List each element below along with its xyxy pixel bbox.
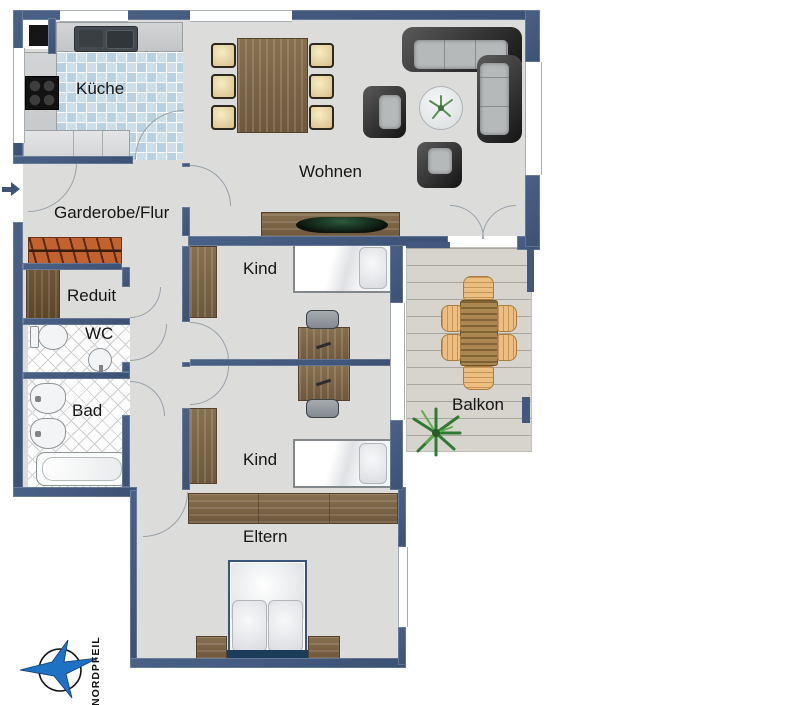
room-label-balkon: Balkon xyxy=(452,395,504,415)
wall-balcony-a xyxy=(390,236,403,303)
armchair-seat xyxy=(428,148,452,174)
wall-living-right-a xyxy=(525,10,540,62)
balcony-chair xyxy=(441,334,461,361)
wardrobe-divider xyxy=(258,494,259,523)
wall-eltern-right-b xyxy=(398,627,406,665)
office-chair xyxy=(306,310,339,329)
tap-icon xyxy=(35,396,41,402)
room-label-wc: WC xyxy=(85,324,113,344)
wardrobe xyxy=(189,246,217,318)
balcony-chair xyxy=(497,334,517,361)
room-label-wohnen: Wohnen xyxy=(299,162,362,182)
window-balcony-door xyxy=(390,303,405,420)
tap-icon xyxy=(35,431,41,437)
tv-sideboard xyxy=(261,212,400,238)
wall-reduit-right xyxy=(122,267,130,287)
wardrobe-divider xyxy=(329,494,330,523)
bathtub-basin xyxy=(42,457,122,481)
armchair xyxy=(417,142,462,188)
wall-bottom xyxy=(130,658,406,668)
double-bed xyxy=(228,560,307,662)
wall-balcony-b xyxy=(390,420,403,490)
tap-icon xyxy=(99,365,103,372)
stove xyxy=(25,76,59,110)
pillow xyxy=(232,600,267,652)
dining-chair xyxy=(309,105,334,130)
wall-corridor-a xyxy=(182,246,190,322)
reduit-cabinet xyxy=(26,268,60,320)
tv xyxy=(296,217,388,233)
room-label-reduit: Reduit xyxy=(67,286,116,306)
balcony-railing xyxy=(527,248,534,292)
armchair xyxy=(363,86,406,138)
wall-eltern-right-a xyxy=(398,487,406,547)
window xyxy=(190,10,292,22)
entry-arrow-head xyxy=(11,182,20,196)
pillow xyxy=(268,600,303,652)
room-label-garderobe: Garderobe/Flur xyxy=(54,203,169,223)
wall-kitchen-bottom xyxy=(13,156,133,164)
wall-corridor-c xyxy=(182,408,190,490)
entry-arrow-shaft xyxy=(2,187,11,192)
window xyxy=(60,10,128,22)
window xyxy=(525,62,542,175)
toilet-bowl xyxy=(38,323,68,350)
corner-sofa-right xyxy=(477,55,522,143)
dining-chair xyxy=(211,105,236,130)
wardrobe-rail xyxy=(28,237,122,264)
room-label-bad: Bad xyxy=(72,401,102,421)
nightstand xyxy=(196,636,227,660)
washbasin xyxy=(30,418,66,449)
balcony-railing xyxy=(406,242,450,248)
balcony-railing xyxy=(522,397,530,423)
balcony-chair xyxy=(463,366,494,390)
room-label-kind-unten: Kind xyxy=(243,450,277,470)
floor-plan: Küche Wohnen Garderobe/Flur Reduit WC Ba… xyxy=(0,0,800,705)
kitchen-shaft xyxy=(29,25,48,46)
room-label-kind-oben: Kind xyxy=(243,259,277,279)
balcony-chair xyxy=(497,305,517,332)
balcony-chair xyxy=(441,305,461,332)
armchair-seat xyxy=(379,95,401,129)
wall-reduit-wc xyxy=(23,318,130,325)
sofa-cushions xyxy=(480,63,509,135)
wall-hall-a xyxy=(182,163,190,167)
sink-basin xyxy=(106,30,134,49)
bathtub xyxy=(36,452,128,486)
north-arrow-label: NORDPFEIL xyxy=(90,634,102,705)
wall-kind-divider xyxy=(190,359,403,366)
sink-drainer xyxy=(79,30,103,47)
wall-niche-stub xyxy=(48,18,56,54)
pillow xyxy=(359,443,387,484)
wall-closet-bottom xyxy=(23,263,122,270)
wall-wc-right xyxy=(122,362,130,372)
bed-kind1 xyxy=(293,243,392,293)
wall-bad-right xyxy=(122,415,130,487)
wardrobe xyxy=(189,408,217,484)
balcony-chair xyxy=(463,276,494,300)
table-plant xyxy=(426,93,456,123)
dining-chair xyxy=(309,43,334,68)
wall-eltern-left xyxy=(130,490,137,668)
dining-table xyxy=(237,38,308,133)
wc-washbasin xyxy=(88,348,112,372)
window xyxy=(13,48,25,143)
wall-corridor-b xyxy=(182,362,190,367)
entry-arrow-icon xyxy=(2,180,22,198)
wall-bad-bottom xyxy=(13,487,137,497)
wall-wc-bad xyxy=(23,372,130,379)
pillow xyxy=(359,247,387,289)
window xyxy=(398,547,408,627)
dining-chair xyxy=(211,74,236,99)
room-label-eltern: Eltern xyxy=(243,527,287,547)
room-label-kueche: Küche xyxy=(76,79,124,99)
wall-hall-b xyxy=(182,207,190,236)
coffee-table xyxy=(419,86,463,130)
balcony-table xyxy=(460,300,498,366)
dining-chair xyxy=(211,43,236,68)
washbasin xyxy=(30,383,66,414)
wall-left-lower xyxy=(13,222,23,497)
bed-kind2 xyxy=(293,439,392,488)
dining-chair xyxy=(309,74,334,99)
wardrobe-eltern xyxy=(188,493,398,524)
wall-living-right-b xyxy=(525,175,540,247)
office-chair xyxy=(306,399,339,418)
nightstand xyxy=(308,636,340,660)
kitchen-sink xyxy=(74,26,138,52)
